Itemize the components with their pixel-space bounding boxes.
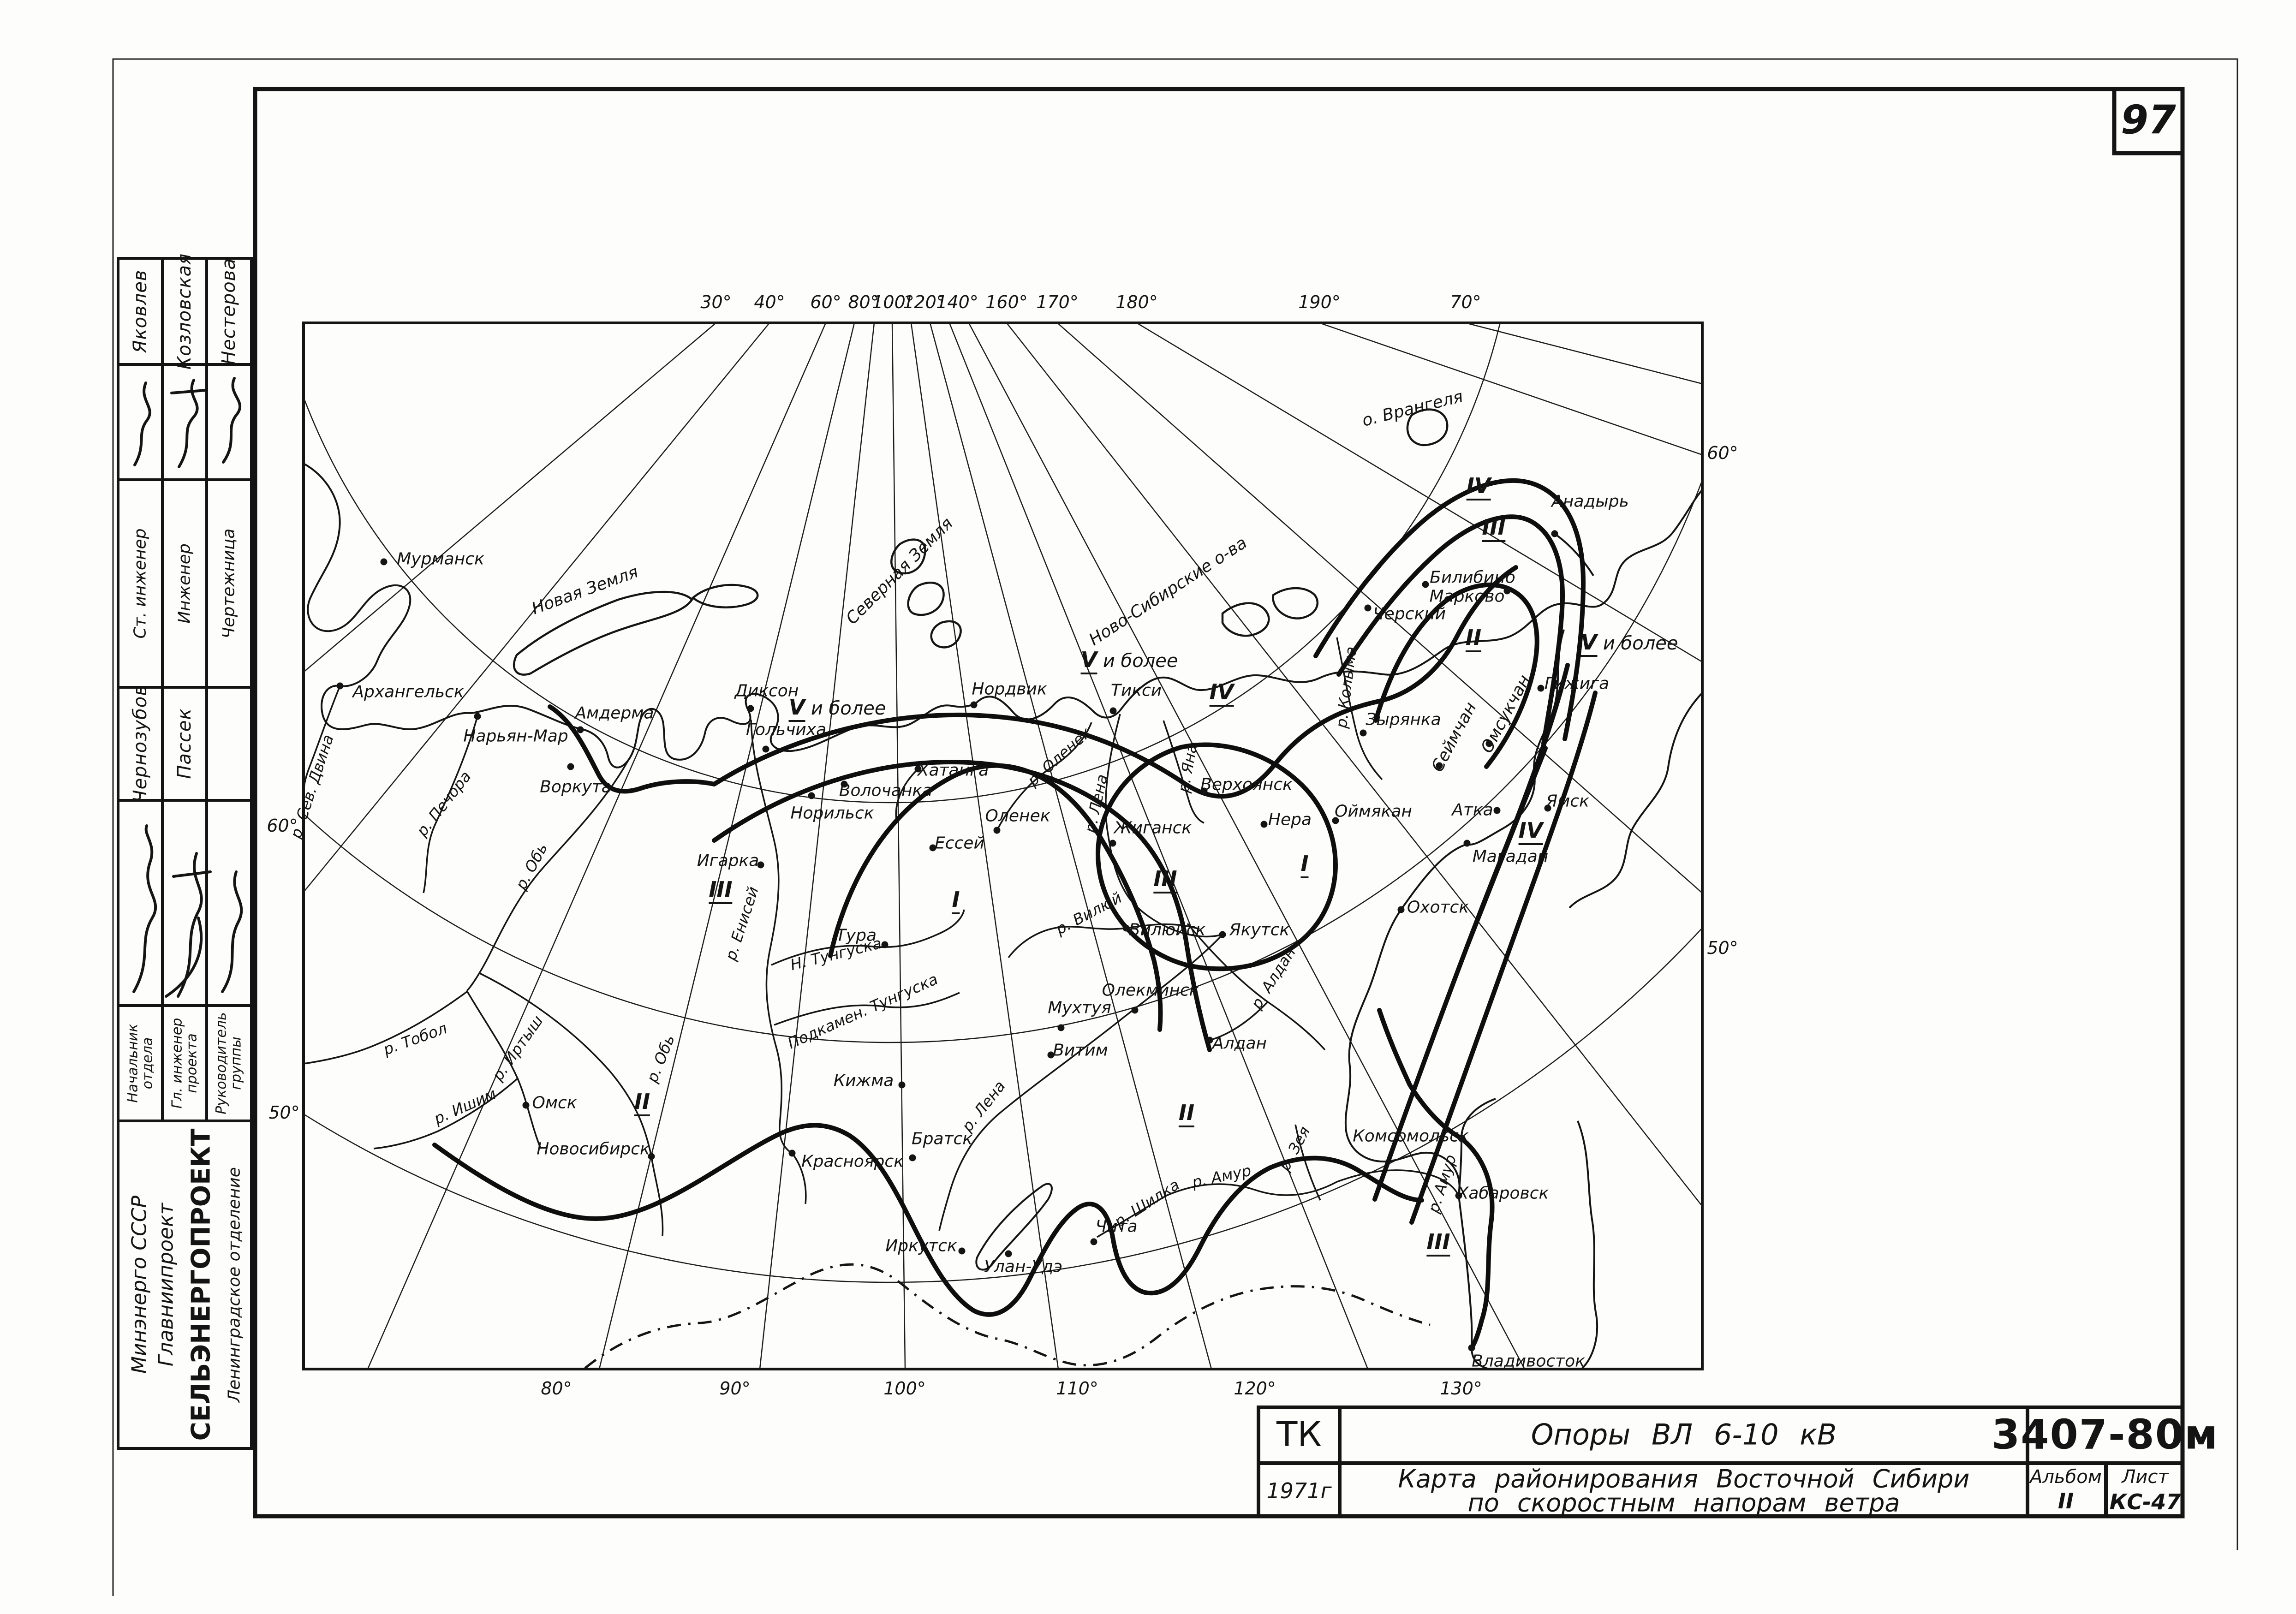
stamp-role-3: Чертежница [220,529,239,639]
longitude-label-top: 180° [1115,292,1158,312]
page-number: 97 [2121,97,2176,143]
longitude-label-bottom: 130° [1440,1378,1482,1399]
latitude-label-side: 60° [267,816,298,836]
city-label: Атка [1452,801,1493,820]
city-label: Нера [1268,810,1312,829]
zone-label: I [952,887,960,912]
city-dot [1109,840,1116,847]
zone-label: I [1300,851,1308,876]
city-label: Ямск [1546,792,1589,811]
city-dot [1422,581,1429,588]
longitude-label-bottom: 80° [541,1378,572,1399]
city-dot [1110,708,1117,715]
zone-label: II [634,1089,650,1114]
latitude-label-side: 50° [268,1102,299,1123]
zone-label: IV [1210,679,1234,704]
drawing-linework [0,0,2296,1614]
title-block-album-value: II [2058,1489,2074,1513]
city-dot [1058,1024,1065,1031]
stamp-role-1: Ст. инженер [131,528,150,638]
city-label: Нарьян-Мар [463,727,568,746]
city-label: Олекминск [1102,981,1199,1000]
title-block-title-line2: по скоростным напорам ветра [1467,1489,1900,1518]
city-label: Воркута [540,778,612,797]
city-label: Иркутск [885,1237,957,1256]
city-label: Вилюйск [1129,921,1205,940]
city-dot [763,746,769,753]
city-dot [971,702,978,709]
city-label: Гижига [1545,674,1609,693]
city-label: Хатанга [918,761,989,780]
city-label: Жиганск [1114,819,1192,838]
title-block-year: 1971г [1266,1478,1331,1503]
city-dot [808,792,815,799]
stamp-role2-1: Начальник отдела [126,1006,155,1121]
title-block-album-label: Альбом [2030,1466,2102,1488]
latitude-label-side: 60° [1707,443,1738,463]
title-block-sheet-value: КС-47 [2110,1489,2181,1514]
zone-label: III [1426,1229,1450,1254]
stamp-role2-3: Руководитель группы [215,1006,244,1121]
stamp-name2-2: Пассек [174,708,195,779]
city-label: Архангельск [352,683,464,702]
city-label: Нордвик [972,680,1047,699]
city-label: Кижма [834,1072,894,1090]
city-dot [1219,931,1226,938]
longitude-label-top: 30° [700,292,731,312]
city-dot [1398,906,1405,913]
city-label: Волочанка [839,781,932,800]
city-label: Улан-Удэ [984,1257,1062,1276]
zone-label: III [1482,515,1505,540]
city-dot [899,1082,906,1089]
city-dot [789,1150,796,1157]
city-label: Магадан [1473,847,1549,866]
city-label: Якутск [1229,921,1290,940]
city-label: Тикси [1111,681,1162,700]
city-dot [1132,1007,1139,1014]
city-dot [1464,840,1471,847]
city-dot [1360,730,1367,737]
city-dot [1261,821,1268,828]
stamp-name-2: Козловская [174,253,195,369]
title-block-object: Опоры ВЛ 6-10 кВ [1531,1418,1837,1452]
city-dot [1091,1239,1097,1245]
city-label: Норильск [790,804,874,823]
city-label: Зырянка [1366,710,1441,729]
zone-label: V и более [1581,630,1678,655]
longitude-label-top: 170° [1036,292,1079,312]
zone-label: IV [1467,473,1491,498]
city-dot [959,1248,966,1255]
zone-label: V и более [1081,647,1178,672]
stamp-org-ministry: Минэнерго СССР [128,1196,151,1374]
city-label: Черский [1373,605,1446,624]
city-label: Марково [1430,587,1505,606]
stamp-org-branch: Ленинградское отделение [225,1167,244,1402]
stamp-org-glavk: Главниипроект [155,1203,178,1366]
title-block-code: ТК [1276,1415,1322,1454]
city-dot [337,683,344,690]
zone-label: III [1153,866,1177,891]
stamp-name-3: Нестерова [218,258,239,365]
longitude-label-top: 40° [754,292,785,312]
city-label: Игарка [697,852,759,870]
zone-label: IV [1519,818,1543,843]
city-label: Оленек [985,807,1050,826]
city-dot [1551,530,1558,537]
longitude-label-top: 140° [936,292,978,312]
drawing-sheet: 97 Яковлев Козловская Нестерова Ст. инже… [0,0,2296,1614]
zone-label: II [1179,1100,1194,1125]
city-label: Билибино [1430,568,1515,587]
city-label: Комсомольск [1353,1127,1469,1146]
city-label: Красноярск [801,1152,904,1171]
stamp-name-1: Яковлев [130,270,151,353]
city-label: Новосибирск [537,1140,650,1159]
city-dot [523,1102,530,1109]
city-dot [1005,1251,1012,1257]
city-dot [381,559,388,566]
city-dot [747,705,754,712]
stamp-name2-1: Чернозубов [130,685,151,803]
longitude-label-top: 60° [810,292,841,312]
zone-label: V и более [789,695,886,720]
city-dot [1538,685,1545,692]
city-dot [1365,605,1372,612]
city-label: Братск [912,1130,972,1149]
city-label: Оймякан [1335,802,1412,821]
zone-label: II [1466,625,1481,650]
city-dot [1504,588,1511,595]
city-dot [909,1155,916,1161]
longitude-label-bottom: 90° [719,1378,750,1399]
title-block-sheet-label: Лист [2122,1466,2168,1488]
stamp-role2-2: Гл. инженер проекта [170,1006,199,1121]
city-dot [994,827,1001,834]
title-block-doc-number: 3407-80м [1992,1411,2218,1459]
city-label: Охотск [1407,898,1469,917]
city-label: Витим [1053,1041,1108,1060]
island-shapes [514,410,1447,675]
city-label: Гольчиха [746,721,826,739]
city-dot [577,727,584,733]
city-dot [1494,807,1501,814]
state-border-dashdot [585,1264,1430,1368]
city-label: Амдерма [575,704,654,723]
zone-label: III [709,877,732,902]
city-label: Владивосток [1472,1352,1585,1371]
city-dot [474,713,481,720]
longitude-label-top: 160° [985,292,1028,312]
stamp-role-2: Инженер [175,543,194,624]
city-label: Алдан [1212,1034,1267,1053]
city-label: Хабаровск [1457,1184,1549,1203]
city-label: Омск [532,1094,577,1113]
city-dot [567,763,574,770]
stamp-org-institute: СЕЛЬЭНЕРГОПРОЕКТ [186,1129,216,1441]
longitude-label-bottom: 100° [883,1378,926,1399]
city-label: Мухтуя [1048,999,1111,1018]
city-label: Анадырь [1551,492,1629,511]
city-label: Мурманск [397,550,484,569]
city-dot [1468,1345,1475,1352]
longitude-label-top: 70° [1450,292,1481,312]
city-label: Ессей [935,834,984,853]
longitude-label-bottom: 110° [1056,1378,1098,1399]
longitude-label-bottom: 120° [1234,1378,1276,1399]
drawing-frame [255,89,2183,1516]
latitude-label-side: 50° [1707,938,1738,958]
city-label: Верхоянск [1200,775,1293,794]
longitude-label-top: 190° [1298,292,1341,312]
